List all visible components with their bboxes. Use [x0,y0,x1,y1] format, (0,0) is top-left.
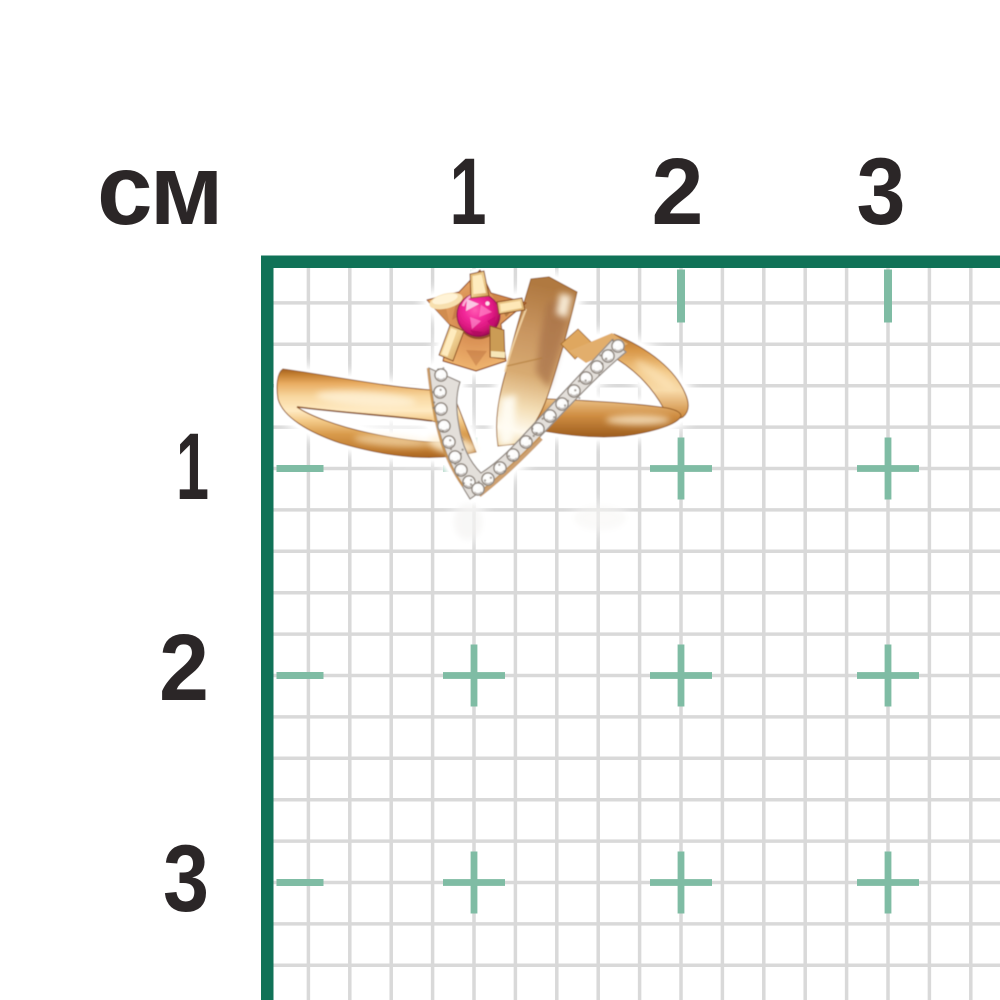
svg-text:1: 1 [176,414,209,520]
svg-text:2: 2 [652,139,704,245]
svg-text:3: 3 [857,139,906,245]
svg-text:2: 2 [159,615,209,721]
svg-text:см: см [97,134,221,246]
svg-text:3: 3 [163,826,209,932]
svg-text:1: 1 [450,139,487,245]
